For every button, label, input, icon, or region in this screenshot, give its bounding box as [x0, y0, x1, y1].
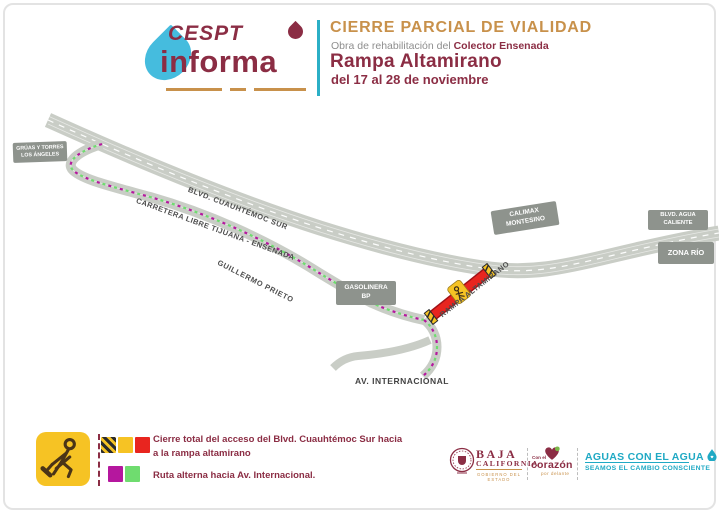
legend-alternate-text: Ruta alterna hacia Av. Internacional. — [153, 469, 315, 483]
cespt-logo-text: CESPT — [168, 22, 243, 46]
roadwork-sign-badge — [36, 432, 90, 486]
legend-swatch-magenta — [108, 466, 123, 482]
footer-separator — [577, 448, 578, 480]
legend-swatch-striped — [101, 437, 116, 453]
logo-underline — [254, 88, 306, 91]
state-name-2: CALIFORNIA — [476, 459, 539, 468]
slogan-divider — [585, 462, 689, 463]
footer-separator — [527, 448, 528, 480]
road-to-av-internacional — [423, 320, 437, 376]
legend-swatch-yellow — [118, 437, 133, 453]
place-label-gruas: GRÚAS Y TORRES LOS ÁNGELES — [13, 141, 68, 163]
heart-logo-sub: por delante — [541, 471, 570, 476]
baja-california-seal-icon — [449, 445, 475, 477]
slogan-cambio: SEAMOS EL CAMBIO CONSCIENTE — [585, 465, 710, 472]
slogan-aguas: AGUAS CON EL AGUA — [585, 449, 717, 463]
heart-logo-main: corazón — [531, 459, 573, 471]
legend-swatch-green — [125, 466, 140, 482]
legend-closure-text: Cierre total del acceso del Blvd. Cuauht… — [153, 433, 402, 460]
infographic-cierre-vialidad: CESPT informa CIERRE PARCIAL DE VIALIDAD… — [0, 0, 719, 513]
logo-underline — [230, 88, 246, 91]
informa-logo-text: informa — [160, 44, 277, 80]
place-label-gasolinera-bp: GASOLINERA BP — [336, 281, 396, 305]
legend-swatch-red — [135, 437, 150, 453]
legend-divider — [98, 434, 100, 486]
worker-digging-icon — [36, 432, 90, 486]
road-side-branch — [333, 340, 430, 368]
road-label-av-internacional: AV. INTERNACIONAL — [355, 376, 449, 386]
water-drop-heart-icon — [707, 449, 717, 461]
place-label-zona-rio: ZONA RÍO — [658, 242, 714, 264]
state-subtitle: GOBIERNO DEL ESTADO — [476, 469, 522, 482]
place-label-blvd-agua-caliente: BLVD. AGUA CALIENTE — [648, 210, 708, 230]
logo-underline — [166, 88, 222, 91]
